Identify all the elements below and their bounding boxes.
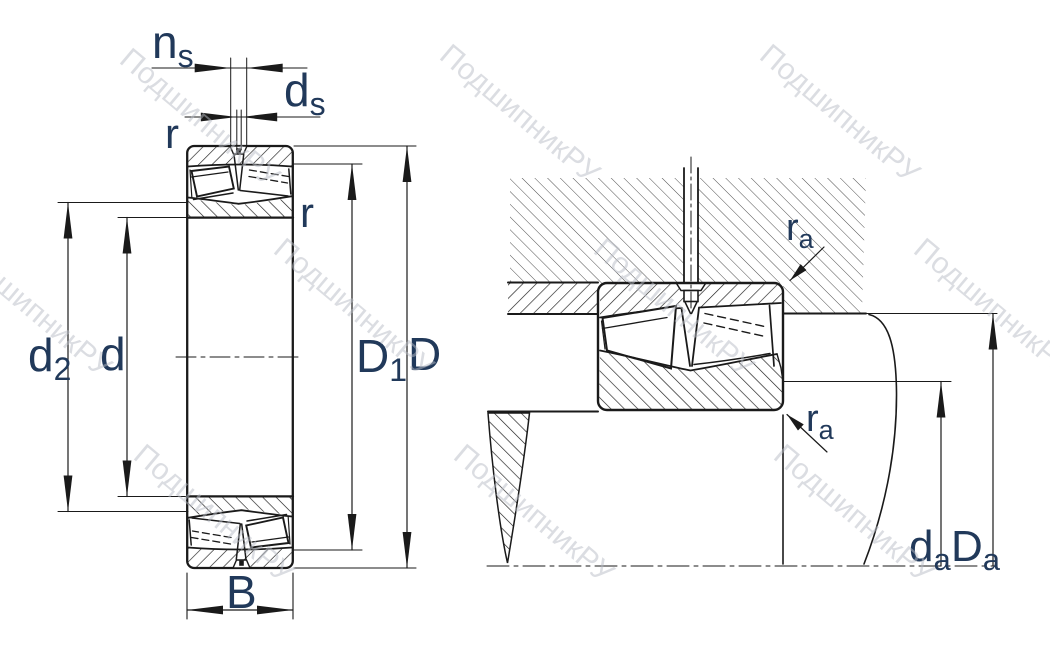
watermark-text: ПодшипникРУ: [754, 38, 927, 191]
watermark-text: ПодшипникРУ: [768, 438, 941, 591]
label-ra-bottom: ra: [806, 398, 835, 445]
watermark-text: ПодшипникРУ: [434, 38, 607, 191]
label-r-inner: r: [300, 189, 314, 236]
locating-ring-section: [508, 283, 598, 314]
label-ds: ds: [284, 64, 326, 122]
label-B: B: [226, 566, 257, 618]
technical-drawing-canvas: ns ds r r d2 d D1 D B: [0, 0, 1050, 650]
watermark-text: ПодшипникРУ: [448, 438, 621, 591]
watermark-text: ПодшипникРУ: [908, 232, 1050, 385]
technical-drawing-page: ns ds r r d2 d D1 D B: [0, 0, 1050, 650]
